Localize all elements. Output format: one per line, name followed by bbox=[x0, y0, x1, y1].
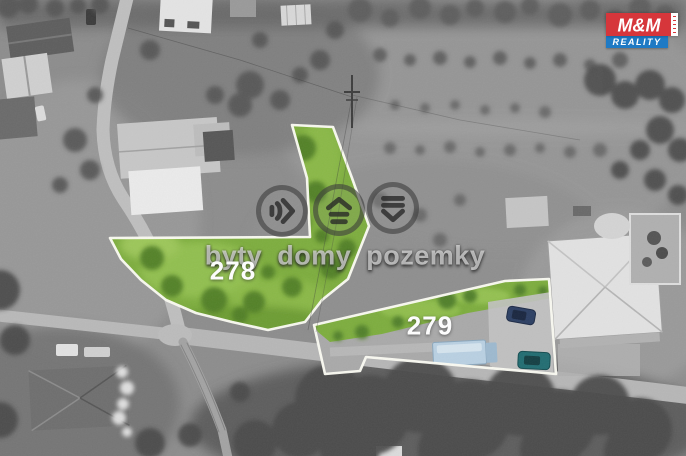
logo-reality-text: REALITY bbox=[612, 38, 661, 47]
apartments-chevrons-right-icon bbox=[256, 185, 308, 237]
aerial-photo: byty domy pozemky 278 279 M&M REALITY bbox=[0, 0, 686, 456]
land-chevron-down-icon bbox=[367, 182, 419, 234]
plot-278-label: 278 bbox=[210, 256, 256, 287]
logo-red-box: M&M bbox=[606, 13, 678, 36]
house-chevron-up-icon bbox=[313, 184, 365, 236]
mm-reality-logo: M&M REALITY bbox=[606, 13, 678, 48]
logo-side-strip bbox=[671, 13, 678, 36]
logo-blue-box: REALITY bbox=[606, 36, 668, 48]
logo-mm-text: M&M bbox=[618, 15, 667, 34]
plot-279-label: 279 bbox=[407, 311, 453, 342]
